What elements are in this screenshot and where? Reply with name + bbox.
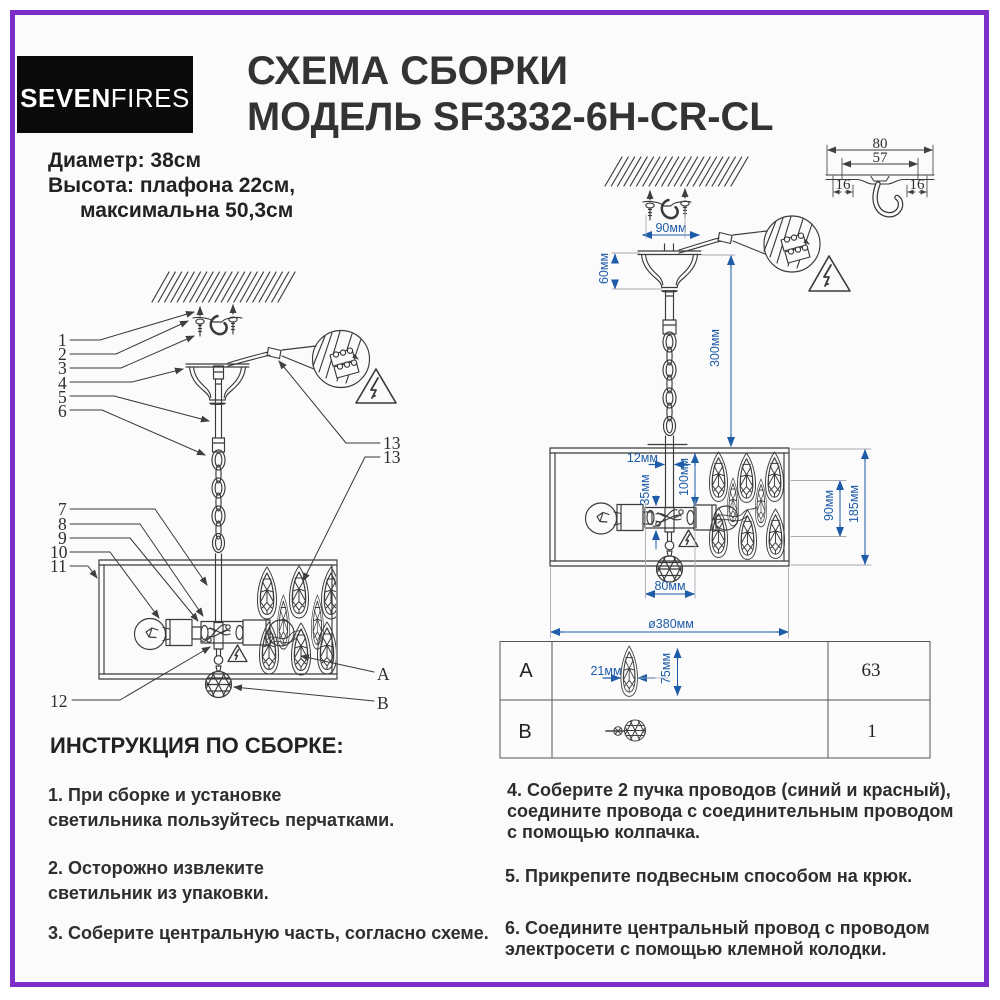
svg-text:80мм: 80мм — [654, 579, 685, 593]
svg-text:90мм: 90мм — [655, 221, 686, 235]
svg-text:A: A — [377, 664, 390, 684]
svg-text:16: 16 — [910, 177, 926, 193]
svg-text:300мм: 300мм — [708, 329, 722, 367]
svg-text:185мм: 185мм — [847, 485, 861, 523]
svg-text:12: 12 — [50, 691, 68, 711]
svg-text:100мм: 100мм — [677, 458, 691, 496]
svg-text:6: 6 — [58, 401, 67, 421]
svg-text:60мм: 60мм — [597, 253, 611, 284]
svg-text:B: B — [377, 693, 389, 713]
svg-text:12мм: 12мм — [627, 451, 658, 465]
svg-text:ø380мм: ø380мм — [648, 617, 694, 631]
svg-text:21мм: 21мм — [590, 664, 621, 678]
svg-text:75мм: 75мм — [659, 653, 673, 684]
svg-text:90мм: 90мм — [822, 490, 836, 521]
svg-text:13: 13 — [383, 447, 401, 467]
svg-text:11: 11 — [50, 556, 67, 576]
svg-text:16: 16 — [836, 177, 852, 193]
svg-text:35мм: 35мм — [638, 474, 652, 505]
svg-text:B: B — [518, 721, 531, 743]
svg-text:57: 57 — [873, 150, 889, 166]
svg-text:A: A — [519, 660, 533, 682]
svg-text:1: 1 — [867, 721, 877, 742]
svg-text:63: 63 — [862, 660, 881, 681]
